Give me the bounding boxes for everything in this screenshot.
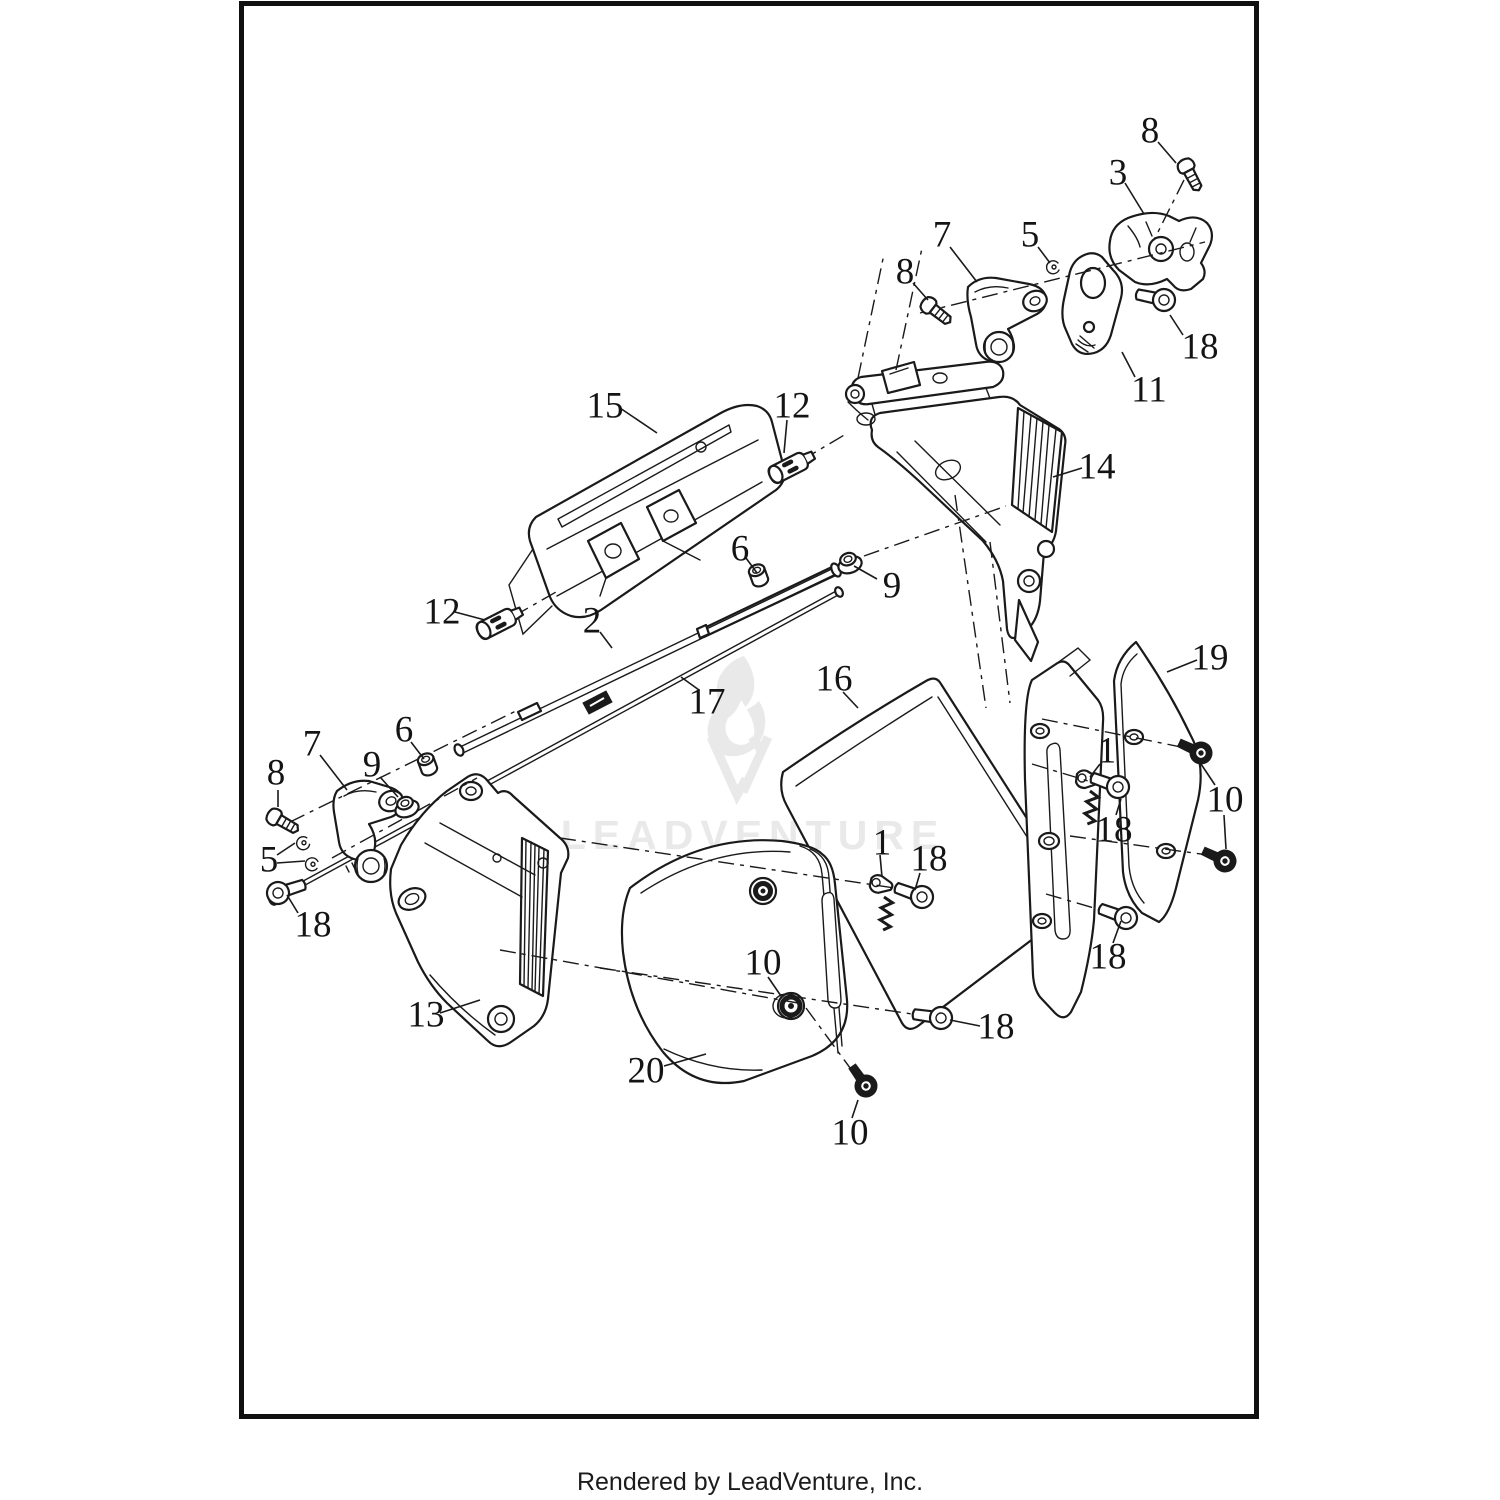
callout-number-10: 10 [1207, 780, 1244, 821]
part-10-screw [1199, 841, 1240, 876]
part-8-screw [264, 806, 302, 838]
part-5-clip [295, 835, 310, 851]
callout-number-6: 6 [731, 529, 750, 570]
callout-number-10: 10 [832, 1113, 869, 1154]
callout-number-18: 18 [1182, 327, 1219, 368]
part-5-clip [304, 856, 319, 872]
part-5-clip [1047, 261, 1059, 274]
callout-number-9: 9 [363, 745, 382, 786]
part-6-bushing [747, 562, 770, 588]
footer-credit: Rendered by LeadVenture, Inc. [0, 1468, 1500, 1497]
callout-number-18: 18 [1096, 810, 1133, 851]
callout-number-5: 5 [260, 840, 279, 881]
callout-number-10: 10 [745, 943, 782, 984]
callout-number-8: 8 [1141, 111, 1160, 152]
part-1-clip-center [869, 875, 893, 931]
callout-number-7: 7 [303, 724, 322, 765]
part-18-screw [1134, 283, 1177, 313]
callout-number-9: 9 [883, 566, 902, 607]
part-6-bushing [416, 751, 439, 777]
part-7-lever-top [967, 278, 1049, 362]
callout-number-18: 18 [911, 839, 948, 880]
callout-number-18: 18 [295, 905, 332, 946]
callout-number-2: 2 [583, 601, 602, 642]
callout-number-18: 18 [1090, 937, 1127, 978]
callout-number-18: 18 [978, 1007, 1015, 1048]
callout-number-12: 12 [424, 592, 461, 633]
part-15-instrument-panel [509, 405, 785, 634]
callout-number-7: 7 [933, 215, 952, 256]
parts-diagram-page: LEADVENTURE [0, 0, 1500, 1500]
callout-number-6: 6 [395, 710, 414, 751]
callout-number-16: 16 [816, 659, 853, 700]
part-12-sensor [474, 603, 525, 641]
part-11-bracket [1062, 253, 1122, 354]
part-8-screw [918, 294, 956, 329]
callout-number-1: 1 [1098, 731, 1117, 772]
callout-number-5: 5 [1021, 215, 1040, 256]
callout-number-3: 3 [1109, 153, 1128, 194]
callout-number-8: 8 [267, 753, 286, 794]
callout-number-14: 14 [1079, 447, 1116, 488]
part-18-screw [891, 877, 936, 911]
callout-number-8: 8 [896, 252, 915, 293]
callout-number-17: 17 [689, 682, 726, 723]
part-3-clamp [1109, 213, 1212, 290]
callout-number-11: 11 [1131, 370, 1167, 411]
callout-number-1: 1 [873, 823, 892, 864]
exploded-parts-diagram: LEADVENTURE [0, 0, 1500, 1500]
callout-number-20: 20 [628, 1051, 665, 1092]
callout-number-13: 13 [408, 995, 445, 1036]
callout-number-12: 12 [774, 386, 811, 427]
part-14-windshield-bracket-right [848, 397, 1065, 661]
part-20-headlamp-cowl [622, 840, 847, 1083]
callout-number-15: 15 [587, 386, 624, 427]
callout-number-19: 19 [1192, 638, 1229, 679]
